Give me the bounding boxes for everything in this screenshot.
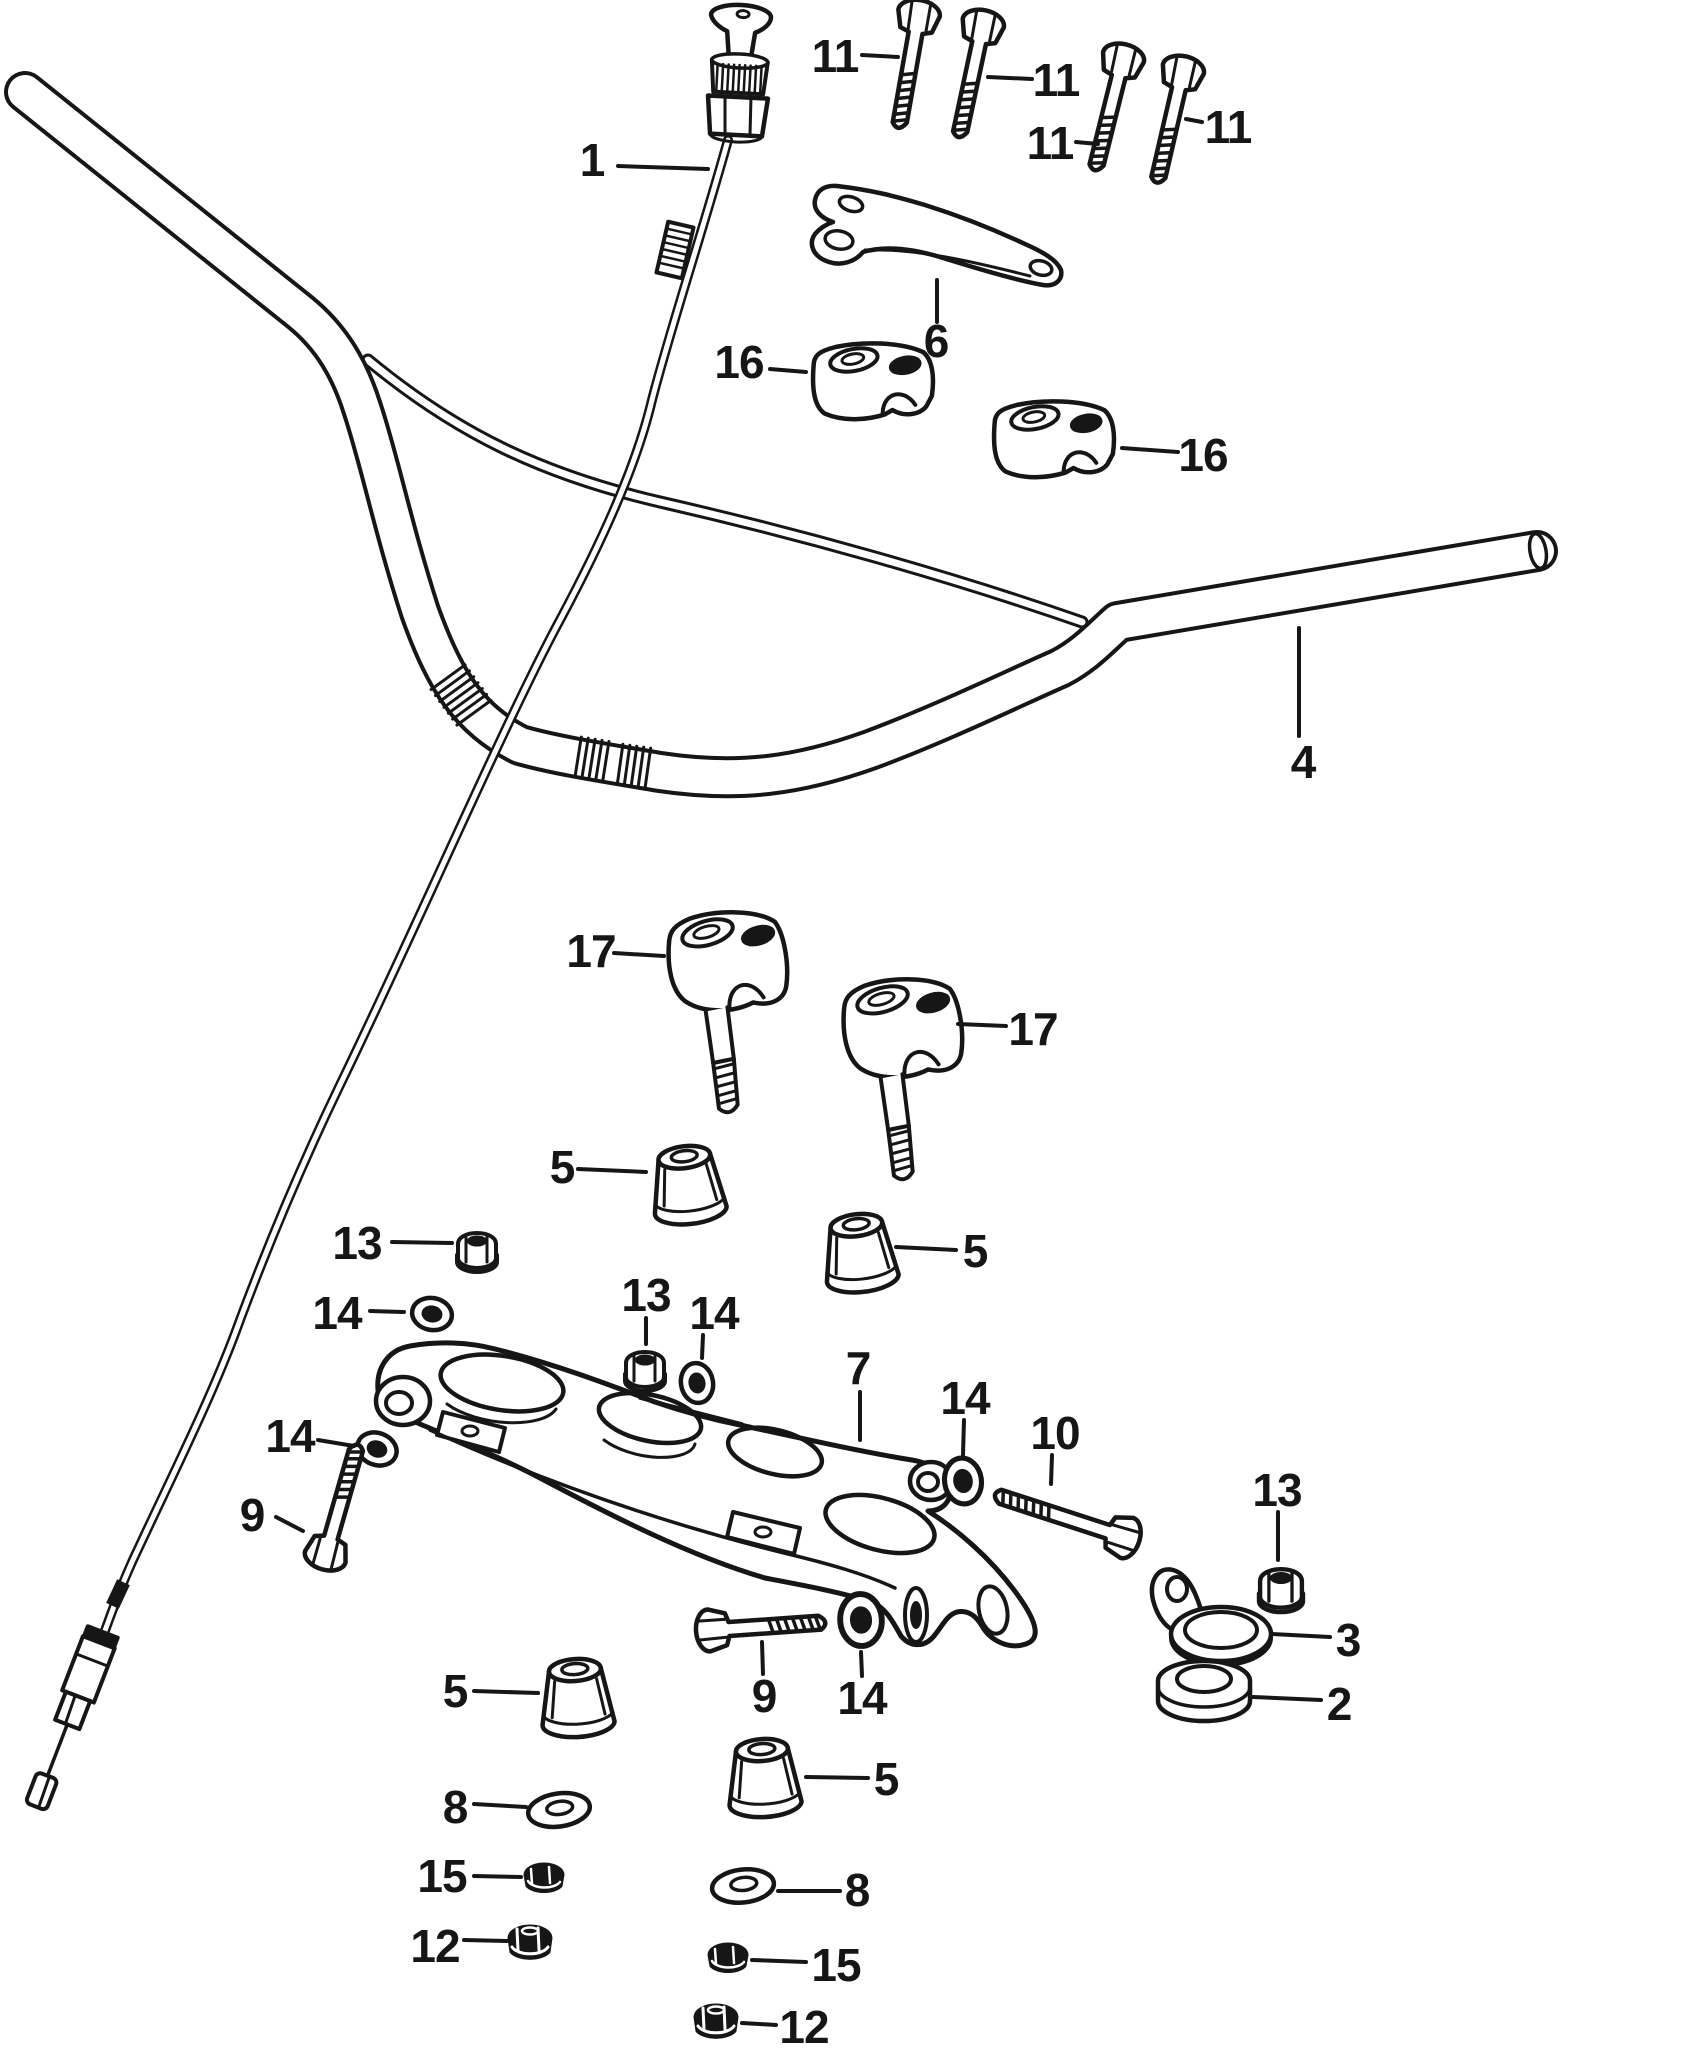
- part-label-16: 16: [714, 336, 763, 388]
- part-label-leader-5: [896, 1247, 956, 1250]
- part-5-bushing-2: [819, 1210, 900, 1296]
- part-label-16: 16: [1178, 429, 1227, 481]
- part-label-leader-13: [392, 1242, 452, 1243]
- part-label-leader-16: [1122, 448, 1178, 452]
- part-label-leader-10: [1051, 1455, 1052, 1484]
- part-label-15: 15: [417, 1850, 467, 1902]
- part-label-13: 13: [332, 1217, 381, 1269]
- part-12-nut-1: [509, 1926, 551, 1958]
- part-16-clamp-1: [811, 340, 935, 421]
- part-5-bushing-1: [647, 1142, 728, 1228]
- parts-diagram-canvas: 1111111116161641717551314131471410149133…: [0, 0, 1700, 2053]
- part-label-5: 5: [963, 1225, 988, 1277]
- part-4-handlebar: [25, 92, 1549, 788]
- part-label-leader-11: [862, 55, 898, 57]
- part-label-8: 8: [845, 1864, 870, 1916]
- part-label-14: 14: [312, 1287, 363, 1339]
- part-label-13: 13: [621, 1269, 670, 1321]
- part-label-14: 14: [940, 1372, 991, 1424]
- part-14-washer-1: [410, 1295, 455, 1333]
- part-label-leader-16: [770, 369, 806, 372]
- part-2-grommet: [1158, 1661, 1250, 1721]
- part-label-13: 13: [1252, 1464, 1301, 1516]
- part-label-4: 4: [1291, 736, 1317, 788]
- part-11-bolt-1: [878, 0, 942, 132]
- part-label-9: 9: [240, 1489, 265, 1541]
- part-label-leader-8: [474, 1804, 526, 1807]
- part-labels-layer: 1111111116161641717551314131471410149133…: [240, 30, 1361, 2053]
- part-label-15: 15: [811, 1939, 861, 1991]
- part-label-leader-5: [474, 1691, 538, 1693]
- part-13-nut-2: [625, 1352, 665, 1391]
- part-13-nut-3: [1259, 1569, 1303, 1612]
- part-label-leader-9: [276, 1517, 303, 1531]
- part-label-11: 11: [1033, 54, 1080, 106]
- part-label-2: 2: [1327, 1678, 1352, 1730]
- part-label-12: 12: [410, 1920, 459, 1972]
- part-8-washer-1: [526, 1789, 592, 1831]
- part-label-14: 14: [689, 1287, 740, 1339]
- cable-adjuster-knurl: [710, 53, 768, 95]
- part-label-1: 1: [580, 134, 605, 186]
- part-label-5: 5: [550, 1141, 575, 1193]
- part-label-leader-5: [578, 1169, 646, 1172]
- parts-diagram-page: 1111111116161641717551314131471410149133…: [0, 0, 1700, 2053]
- part-label-11: 11: [1205, 101, 1252, 153]
- part-label-leader-12: [742, 2023, 776, 2025]
- cable-adjuster-hex: [706, 95, 768, 143]
- part-13-nut-1: [457, 1233, 497, 1272]
- part-4-crossbrace: [368, 360, 1082, 622]
- part-16-clamp-2: [992, 398, 1116, 479]
- part-label-leader-2: [1253, 1697, 1321, 1700]
- part-label-leader-14: [318, 1440, 354, 1446]
- part-14-washer-5: [838, 1593, 883, 1648]
- part-label-10: 10: [1030, 1407, 1079, 1459]
- part-label-leader-14: [370, 1311, 404, 1312]
- part-label-leader-15: [474, 1876, 521, 1877]
- cable-sheath-band: [106, 1579, 130, 1608]
- part-17-holder-2: [839, 973, 976, 1183]
- part-label-6: 6: [924, 315, 949, 367]
- part-label-leader-11: [1076, 142, 1098, 144]
- part-label-9: 9: [752, 1670, 777, 1722]
- part-label-leader-11: [988, 77, 1032, 79]
- part-label-11: 11: [812, 30, 859, 82]
- part-label-leader-15: [752, 1960, 806, 1962]
- part-label-7: 7: [846, 1342, 871, 1394]
- cable-barrel-adjuster: [20, 1626, 119, 1813]
- part-label-5: 5: [874, 1753, 899, 1805]
- part-label-8: 8: [443, 1781, 468, 1833]
- part-17-holder-1: [664, 906, 801, 1116]
- part-label-leader-17: [614, 953, 664, 956]
- part-3-cable-clamp: [1152, 1569, 1271, 1665]
- part-5-bushing-4: [725, 1737, 802, 1820]
- part-label-leader-1: [618, 166, 708, 169]
- part-15-nut-1: [525, 1864, 563, 1892]
- part-12-nut-2: [695, 2005, 737, 2037]
- part-label-leader-5: [806, 1777, 868, 1778]
- part-6-bracket: [812, 186, 1061, 285]
- part-15-nut-2: [709, 1944, 747, 1972]
- part-label-12: 12: [779, 2001, 828, 2053]
- part-label-leader-12: [464, 1940, 507, 1941]
- part-14-washer-3: [678, 1361, 716, 1406]
- part-1-cable: [20, 3, 772, 1812]
- part-label-11: 11: [1027, 117, 1074, 169]
- part-10-bolt: [988, 1475, 1145, 1562]
- cable-knob: [709, 3, 772, 59]
- part-label-17: 17: [566, 925, 615, 977]
- part-label-3: 3: [1336, 1614, 1361, 1666]
- part-label-leader-14: [963, 1420, 964, 1455]
- part-label-5: 5: [443, 1665, 468, 1717]
- part-11-bolt-2: [938, 6, 1006, 141]
- part-label-leader-3: [1272, 1634, 1330, 1637]
- part-label-14: 14: [265, 1410, 316, 1462]
- part-label-leader-17: [958, 1024, 1006, 1026]
- part-label-leader-11: [1186, 119, 1202, 122]
- part-5-bushing-3: [538, 1657, 615, 1740]
- part-8-washer-2: [710, 1866, 775, 1906]
- part-label-14: 14: [837, 1672, 888, 1724]
- part-11-bolt-3: [1075, 39, 1147, 175]
- part-label-17: 17: [1008, 1003, 1057, 1055]
